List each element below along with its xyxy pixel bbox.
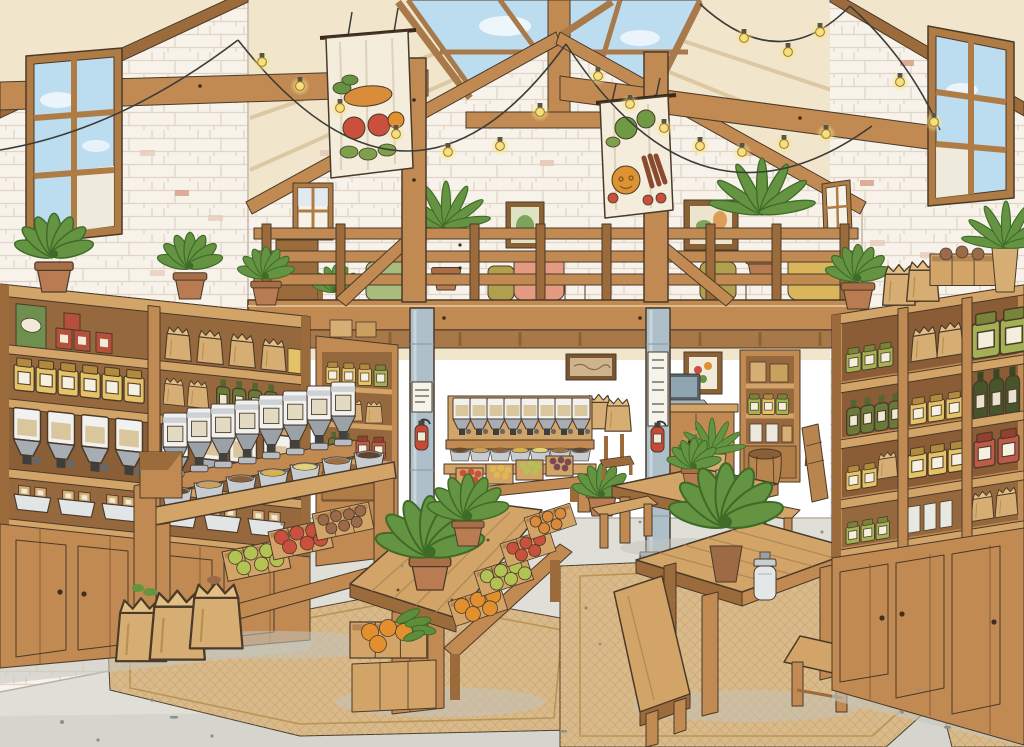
shelving-right xyxy=(824,201,1024,747)
string-light-bulb xyxy=(816,124,836,144)
column-notice-sign xyxy=(412,382,432,412)
string-light-bulb xyxy=(924,112,944,132)
wooden-chair xyxy=(600,434,634,480)
string-light-bulb xyxy=(330,98,350,118)
illustration-stage: Zero-waste bulk grocery store interior —… xyxy=(0,0,1024,747)
string-light-bulb xyxy=(890,72,910,92)
milk-jug xyxy=(754,552,776,600)
framed-map-print xyxy=(566,354,616,380)
string-light-bulb xyxy=(386,124,406,144)
string-light-bulb xyxy=(620,94,640,114)
string-light-bulb xyxy=(252,52,272,72)
string-light-bulb xyxy=(654,118,674,138)
column-notice-sign xyxy=(648,352,668,426)
leaning-board xyxy=(802,424,828,502)
string-light-bulb xyxy=(588,66,608,86)
string-light-bulb xyxy=(490,136,510,156)
string-light-bulb xyxy=(732,142,752,162)
string-light-bulb xyxy=(690,136,710,156)
store-illustration: Zero-waste bulk grocery store interior —… xyxy=(0,0,1024,747)
string-light-bulb xyxy=(530,102,550,122)
string-light-bulb xyxy=(774,134,794,154)
string-light-bulb xyxy=(438,142,458,162)
string-light-bulb xyxy=(734,28,754,48)
string-light-bulb xyxy=(810,22,830,42)
king-post xyxy=(548,0,570,120)
paper-sack xyxy=(605,398,631,431)
string-light-bulb xyxy=(778,42,798,62)
string-light-bulb xyxy=(290,76,310,96)
window-left-large xyxy=(26,48,122,244)
